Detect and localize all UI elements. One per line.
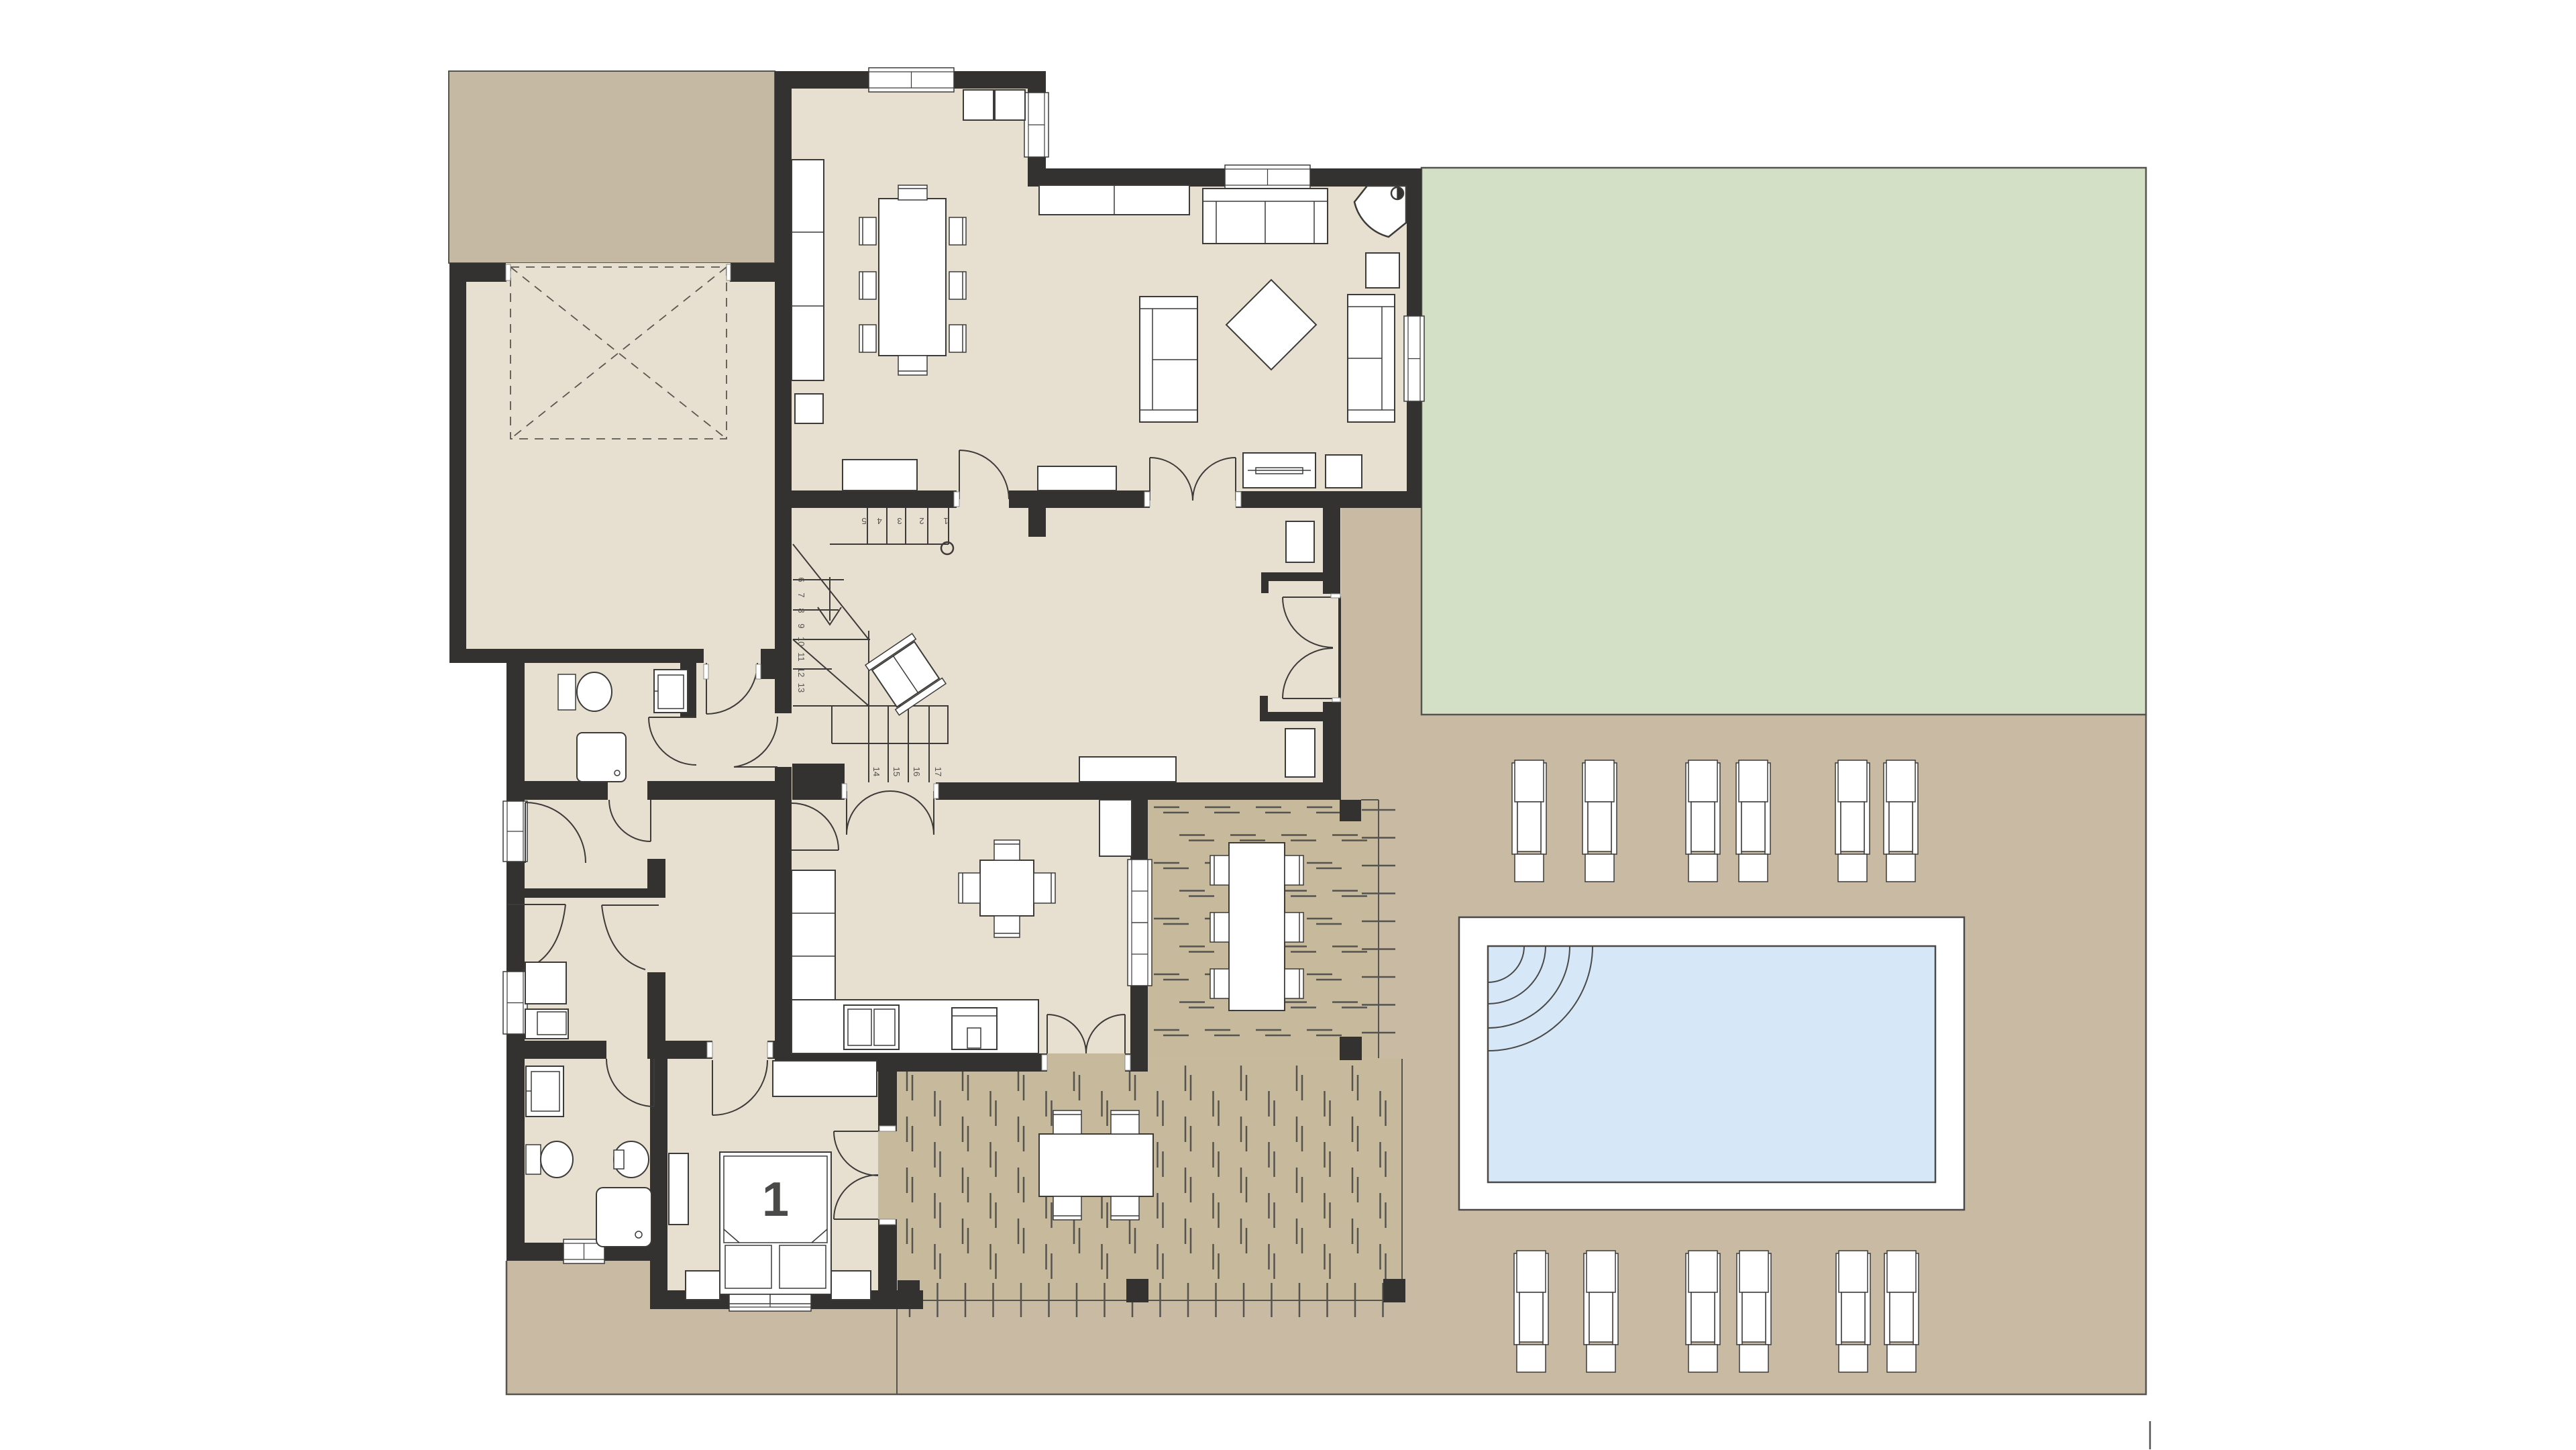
svg-text:7: 7 [796,592,806,597]
svg-text:1: 1 [943,516,948,526]
svg-text:2: 2 [919,516,924,526]
svg-text:17: 17 [933,767,943,776]
svg-text:4: 4 [877,516,881,526]
svg-text:8: 8 [796,608,806,613]
svg-text:14: 14 [871,767,881,776]
svg-text:13: 13 [796,683,806,692]
svg-text:11: 11 [796,652,806,662]
svg-text:16: 16 [912,767,922,776]
svg-text:1: 1 [762,1173,789,1227]
svg-text:6: 6 [796,577,806,582]
svg-text:3: 3 [897,516,902,526]
svg-text:5: 5 [861,516,866,526]
svg-text:12: 12 [796,668,806,677]
svg-text:9: 9 [796,623,806,628]
svg-text:10: 10 [796,637,806,646]
svg-text:15: 15 [892,767,902,776]
